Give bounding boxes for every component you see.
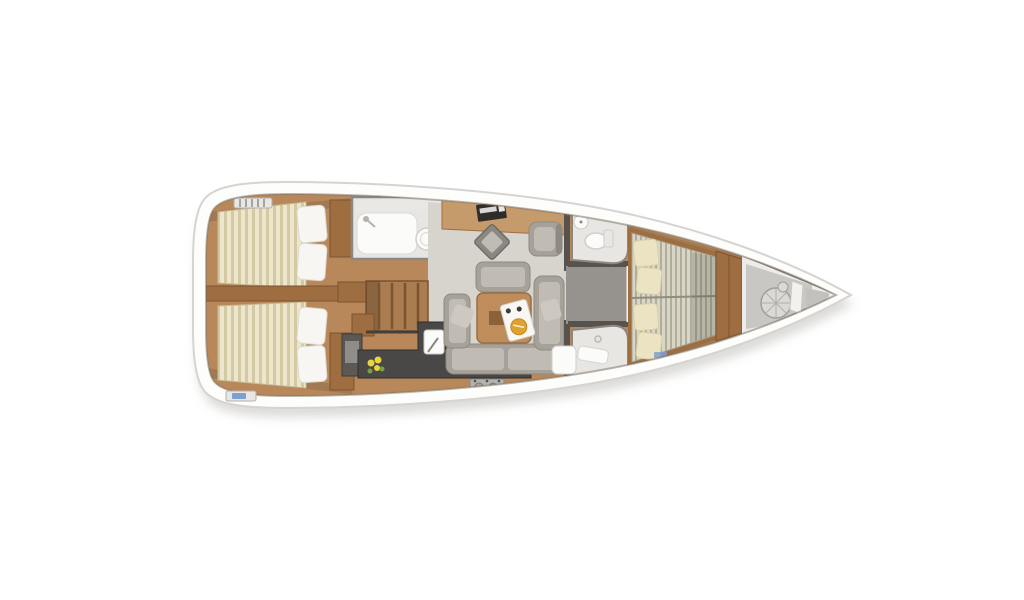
stove-knob	[498, 380, 501, 383]
yacht-floorplan-page	[0, 0, 1024, 600]
side-cabinet	[552, 346, 576, 374]
stove-knob	[486, 380, 489, 383]
pillow	[297, 243, 327, 281]
corridor-floor	[566, 266, 630, 324]
pillow	[296, 205, 327, 243]
pillow	[633, 303, 659, 331]
sofa-cushion	[481, 267, 525, 287]
galley-fridge-door	[345, 341, 359, 363]
sink-drain	[580, 221, 583, 224]
windlass-knob	[778, 282, 788, 292]
berth-mattress	[218, 302, 306, 388]
aft-cabin-divider	[206, 286, 356, 301]
flower-yellow-icon	[375, 357, 382, 364]
floor-plan-svg	[0, 0, 1024, 600]
flower-yellow-icon	[374, 365, 380, 371]
stern-vent	[234, 198, 272, 208]
berth-shade	[692, 252, 716, 342]
stove-knob	[474, 380, 477, 383]
armchair-back	[556, 224, 562, 254]
armchair	[529, 222, 562, 256]
hatch-window	[232, 393, 246, 399]
salon-table	[477, 293, 535, 343]
bow-white-bar	[790, 281, 803, 314]
interior	[193, 180, 853, 412]
headboard-cabinet	[330, 200, 354, 257]
flower-yellow-icon	[368, 360, 375, 367]
pillow	[636, 267, 662, 295]
pillow	[297, 345, 327, 383]
sofa-cushion	[452, 348, 504, 370]
stair-landing	[338, 282, 370, 302]
flower-leaf-icon	[368, 369, 373, 374]
flower-leaf-icon	[380, 367, 385, 372]
armchair-cushion	[534, 227, 555, 251]
berth-mattress	[218, 202, 306, 288]
toilet-tank	[604, 230, 613, 247]
stern-hatch	[226, 391, 256, 401]
pillow	[296, 307, 327, 345]
sofa-cushion	[508, 348, 558, 370]
pillow	[633, 239, 660, 267]
